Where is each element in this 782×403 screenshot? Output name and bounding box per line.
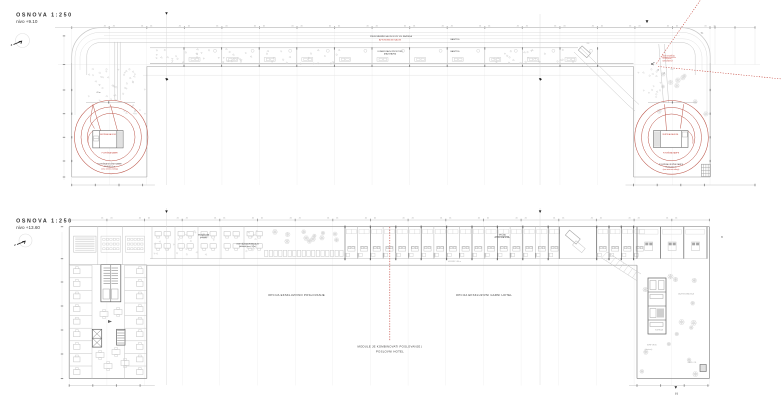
svg-text:41: 41 xyxy=(553,218,555,220)
svg-text:41: 41 xyxy=(666,218,668,220)
svg-text:41: 41 xyxy=(413,25,415,27)
svg-text:41: 41 xyxy=(139,218,141,220)
svg-text:41: 41 xyxy=(252,218,254,220)
svg-text:AVTOMOBILSKI SALON: AVTOMOBILSKI SALON xyxy=(379,38,402,41)
svg-text:41: 41 xyxy=(638,218,640,220)
svg-text:KOMERCIALNI PROSTORI: KOMERCIALNI PROSTORI xyxy=(378,50,403,53)
svg-text:41: 41 xyxy=(675,218,677,220)
svg-text:41: 41 xyxy=(188,25,190,27)
svg-text:nivo +9.10: nivo +9.10 xyxy=(16,19,38,24)
svg-text:41: 41 xyxy=(488,25,490,27)
svg-text:41: 41 xyxy=(113,25,115,27)
svg-text:41: 41 xyxy=(263,25,265,27)
svg-text:VERTIKALNA KOM.: VERTIKALNA KOM. xyxy=(662,133,679,136)
svg-text:OSNOVA 1:250: OSNOVA 1:250 xyxy=(16,218,73,224)
svg-text:OPCIJA EKSKLUZIVNO POSLOVANJE: OPCIJA EKSKLUZIVNO POSLOVANJE xyxy=(268,293,325,297)
svg-text:41: 41 xyxy=(110,218,112,220)
svg-text:41: 41 xyxy=(412,218,414,220)
svg-text:41: 41 xyxy=(216,25,218,27)
svg-text:OSNOVA 1:250: OSNOVA 1:250 xyxy=(16,12,73,18)
svg-text:POVRŠINA RAMPE: POVRŠINA RAMPE xyxy=(663,151,680,154)
svg-text:41: 41 xyxy=(667,25,669,27)
svg-text:MODULE JE KOMBINOVATI POSLOVAN: MODULE JE KOMBINOVATI POSLOVANJE | xyxy=(357,344,422,348)
svg-text:41: 41 xyxy=(299,218,301,220)
svg-text:41: 41 xyxy=(638,25,640,27)
svg-text:41: 41 xyxy=(526,25,528,27)
svg-text:-1: -1 xyxy=(663,73,665,75)
svg-text:41: 41 xyxy=(592,25,594,27)
svg-text:GARD. OS.: GARD. OS. xyxy=(687,361,697,364)
svg-text:41: 41 xyxy=(225,25,227,27)
svg-text:PREDSTAVNIŠKI SALONI VOZIL VIS: PREDSTAVNIŠKI SALONI VOZIL VIS. RAZREDA xyxy=(370,35,413,38)
svg-text:POSLOVNI HOTEL: POSLOVNI HOTEL xyxy=(376,349,404,353)
svg-text:HODNIK 1.80 m: HODNIK 1.80 m xyxy=(448,261,461,263)
svg-text:41: 41 xyxy=(214,218,216,220)
svg-text:OPCIJA EKSKLUZIVNI GARNI HOTEL: OPCIJA EKSKLUZIVNI GARNI HOTEL xyxy=(456,293,512,297)
svg-text:41: 41 xyxy=(402,218,404,220)
svg-text:41: 41 xyxy=(179,25,181,27)
svg-text:41: 41 xyxy=(327,218,329,220)
svg-text:z: z xyxy=(11,43,13,47)
svg-text:ZAJTRKOVALNICA: ZAJTRKOVALNICA xyxy=(678,293,695,296)
svg-text:41: 41 xyxy=(525,218,527,220)
svg-text:41: 41 xyxy=(336,218,338,220)
svg-text:41: 41 xyxy=(591,218,593,220)
svg-text:(ena smerna vožnja): (ena smerna vožnja) xyxy=(663,169,680,171)
svg-text:41: 41 xyxy=(290,218,292,220)
svg-text:41: 41 xyxy=(714,25,716,27)
svg-text:9%: 9% xyxy=(587,43,590,45)
svg-text:41: 41 xyxy=(404,25,406,27)
svg-text:(ena smerna vožnja): (ena smerna vožnja) xyxy=(102,168,119,170)
svg-text:9%: 9% xyxy=(671,69,674,71)
svg-text:41: 41 xyxy=(366,25,368,27)
svg-text:41: 41 xyxy=(177,218,179,220)
svg-text:41: 41 xyxy=(478,218,480,220)
svg-text:41: 41 xyxy=(291,25,293,27)
svg-text:41: 41 xyxy=(329,25,331,27)
svg-text:41: 41 xyxy=(449,218,451,220)
svg-text:HOTELSKA SOBA: HOTELSKA SOBA xyxy=(495,236,511,239)
svg-text:IZVOZ/UVOZ: IZVOZ/UVOZ xyxy=(663,61,673,63)
svg-text:41: 41 xyxy=(601,25,603,27)
svg-text:41: 41 xyxy=(254,25,256,27)
svg-text:z: z xyxy=(14,243,16,247)
svg-text:delovnih mest, 24 m: delovnih mest, 24 m xyxy=(239,245,256,248)
svg-text:41: 41 xyxy=(704,25,706,27)
svg-text:nivo +13.60: nivo +13.60 xyxy=(16,225,40,230)
svg-text:KUHINJA: KUHINJA xyxy=(655,329,663,332)
svg-text:41: 41 xyxy=(442,25,444,27)
svg-text:41: 41 xyxy=(104,25,106,27)
svg-text:41: 41 xyxy=(365,218,367,220)
svg-text:41: 41 xyxy=(440,218,442,220)
svg-text:(pisarne): (pisarne) xyxy=(200,237,207,239)
svg-text:41 m: 41 m xyxy=(96,92,101,94)
svg-text:41: 41 xyxy=(101,218,103,220)
svg-text:41: 41 xyxy=(301,25,303,27)
svg-text:41: 41 xyxy=(451,25,453,27)
svg-text:±0: ±0 xyxy=(657,70,659,72)
svg-text:(dostava): (dostava) xyxy=(645,348,653,351)
svg-text:41: 41 xyxy=(600,218,602,220)
svg-text:41: 41 xyxy=(150,25,152,27)
svg-text:41: 41 xyxy=(141,25,143,27)
svg-text:BAR/TRG: BAR/TRG xyxy=(451,38,460,41)
svg-text:41: 41 xyxy=(676,25,678,27)
svg-text:VERTIKALNA KOM.: VERTIKALNA KOM. xyxy=(100,133,117,136)
svg-text:POVRŠINA RAMPE: POVRŠINA RAMPE xyxy=(102,152,119,155)
svg-text:41: 41 xyxy=(487,218,489,220)
svg-text:41: 41 xyxy=(261,218,263,220)
svg-text:BIFE VHOD: BIFE VHOD xyxy=(647,345,657,347)
svg-text:41: 41 xyxy=(338,25,340,27)
svg-text:41: 41 xyxy=(376,25,378,27)
svg-text:41: 41 xyxy=(223,218,225,220)
svg-text:41: 41 xyxy=(554,25,556,27)
svg-text:BAR/TRG: BAR/TRG xyxy=(451,50,460,53)
svg-text:41: 41 xyxy=(479,25,481,27)
svg-text:(RAZSTAVNI): (RAZSTAVNI) xyxy=(384,52,397,55)
svg-text:41: 41 xyxy=(515,218,517,220)
svg-text:41: 41 xyxy=(148,218,150,220)
svg-text:41: 41 xyxy=(629,25,631,27)
svg-text:41: 41 xyxy=(562,218,564,220)
svg-text:41: 41 xyxy=(563,25,565,27)
svg-text:41: 41 xyxy=(517,25,519,27)
svg-text:41: 41 xyxy=(628,218,630,220)
svg-text:41: 41 xyxy=(374,218,376,220)
svg-text:(N): (N) xyxy=(675,393,679,396)
svg-text:41: 41 xyxy=(186,218,188,220)
